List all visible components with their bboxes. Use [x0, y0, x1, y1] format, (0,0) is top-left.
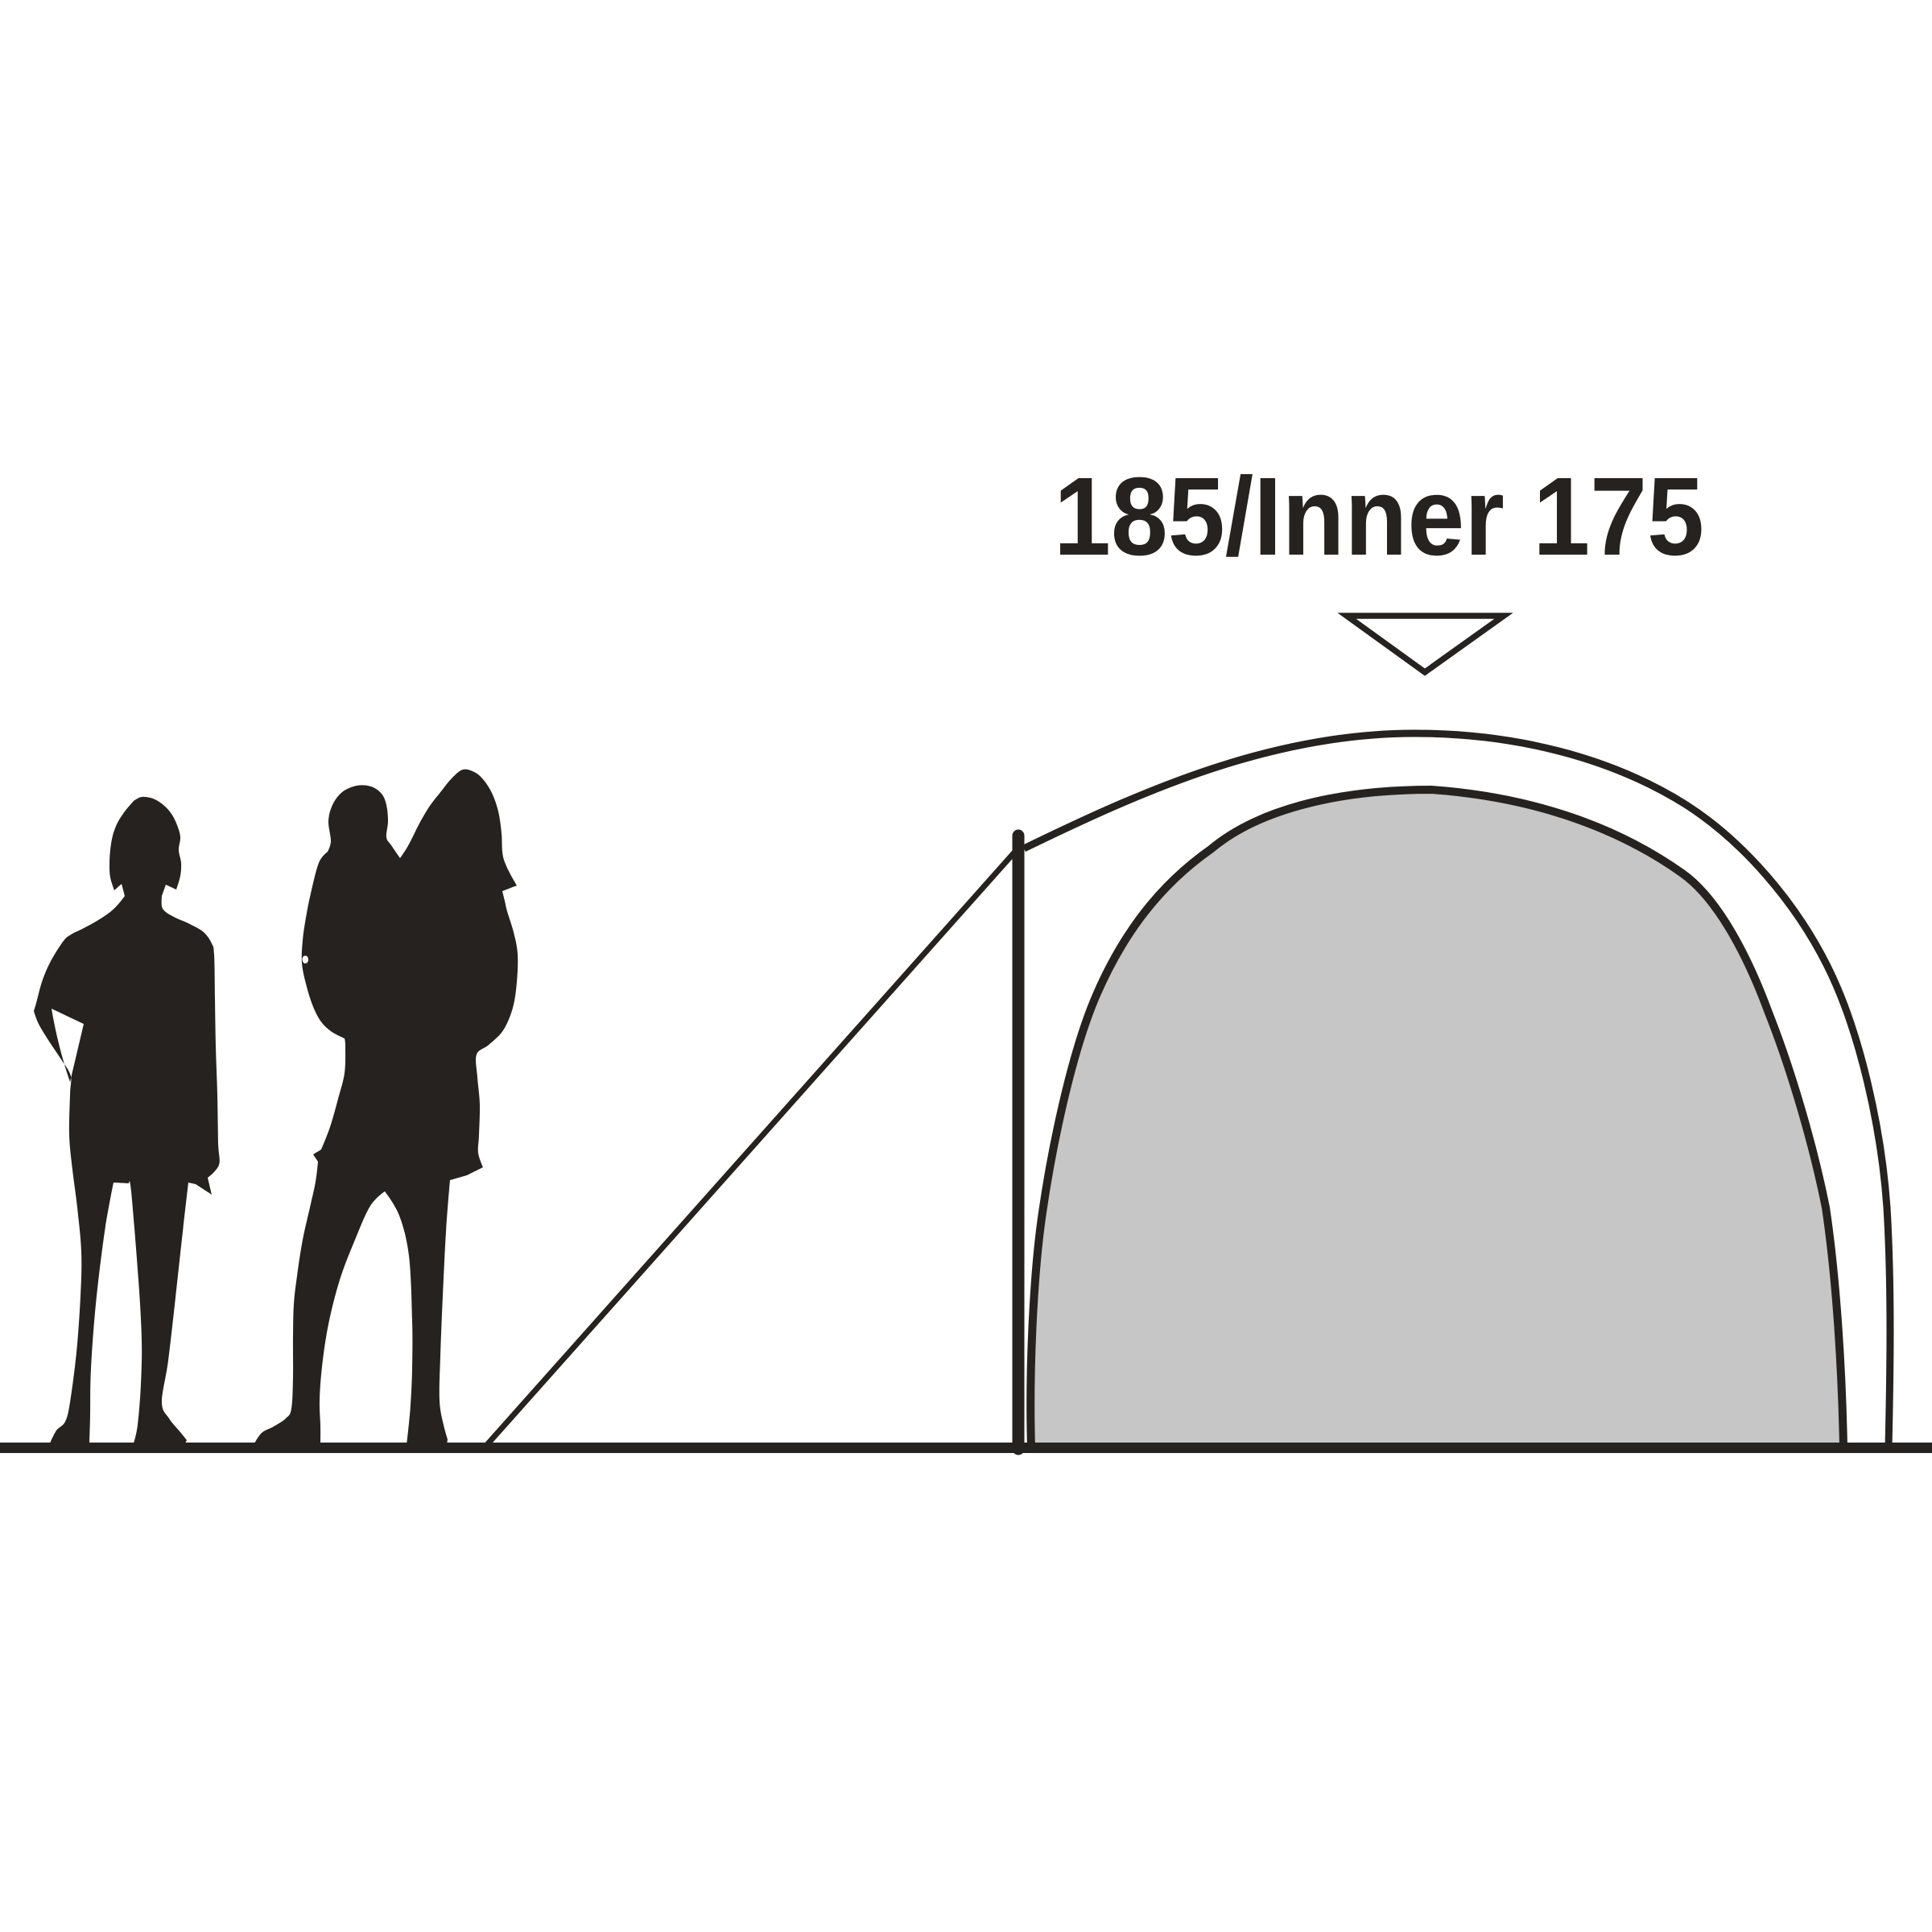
svg-text:185/Inner 175: 185/Inner 175 [1054, 455, 1704, 579]
